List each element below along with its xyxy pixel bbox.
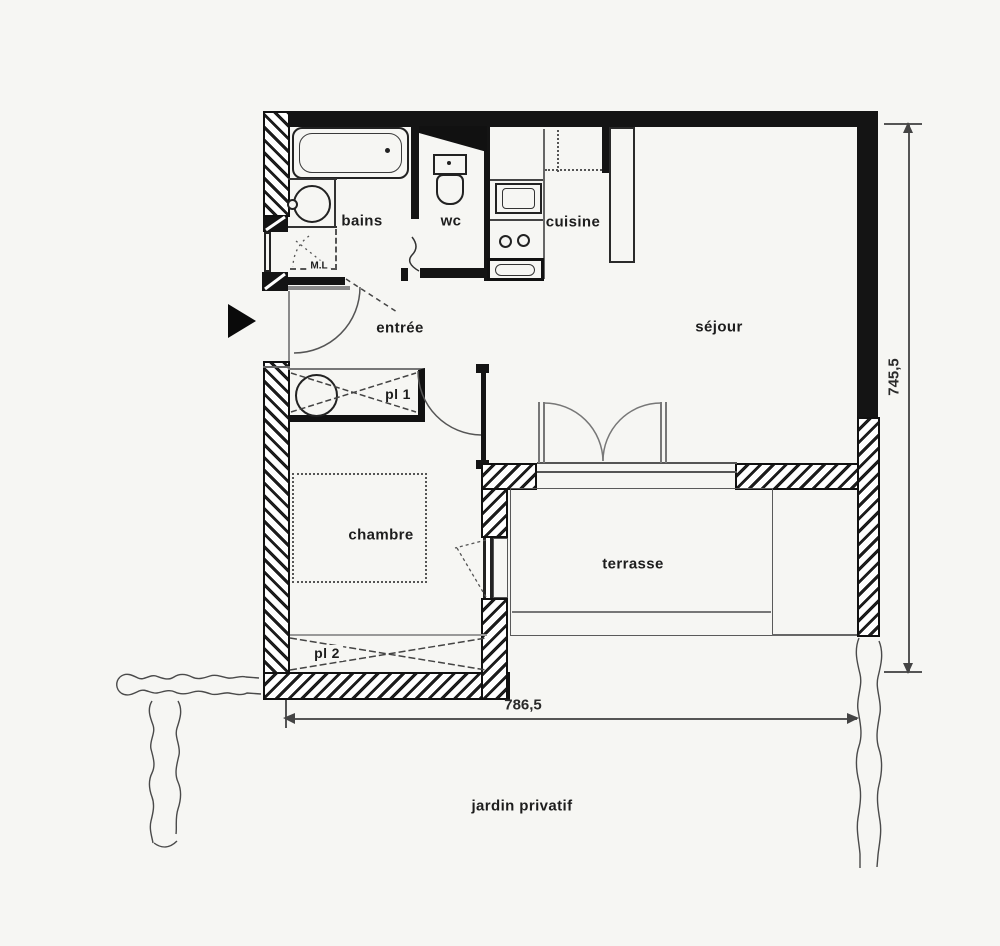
wall-nook-west bbox=[264, 232, 271, 272]
dimension-height: 745,5 bbox=[886, 358, 903, 396]
wall-wc-jamb bbox=[401, 268, 408, 281]
upper-cabinet-line-v bbox=[557, 130, 559, 172]
french-door-leaf-right bbox=[660, 402, 667, 463]
wall-nook-end-top bbox=[476, 364, 489, 373]
room-label-terrasse: terrasse bbox=[602, 556, 664, 573]
room-label-entree: entrée bbox=[376, 320, 423, 337]
room-label-wc: wc bbox=[441, 213, 462, 230]
chambre-window-swing bbox=[455, 540, 486, 597]
toilet-bowl bbox=[436, 174, 464, 205]
kitchen-counter-line2 bbox=[490, 219, 543, 221]
wall-top bbox=[263, 111, 878, 127]
pl1-top-line bbox=[263, 366, 290, 368]
bathtub-inner bbox=[299, 133, 402, 173]
french-door-arc-left bbox=[544, 403, 603, 461]
upper-cabinet-line-h bbox=[545, 169, 602, 171]
garden-fence-right-a bbox=[856, 638, 861, 868]
dimension-width: 786,5 bbox=[504, 697, 542, 714]
jamb-block-upper bbox=[263, 215, 288, 232]
floor-plan: bains wc cuisine entrée séjour chambre t… bbox=[0, 0, 1000, 946]
bathtub-drain bbox=[385, 148, 390, 153]
kitchen-counter-line1 bbox=[490, 179, 543, 181]
wall-right bbox=[857, 111, 878, 417]
french-door-arc-right bbox=[603, 403, 661, 461]
dimension-line-horizontal bbox=[285, 718, 857, 720]
jamb-block-lower bbox=[262, 272, 288, 291]
wall-bains-bottom bbox=[288, 277, 345, 285]
room-label-sejour: séjour bbox=[695, 319, 742, 336]
dimension-line-vertical bbox=[908, 124, 910, 672]
washbasin-tap bbox=[287, 199, 298, 210]
terrace-inner-line bbox=[512, 611, 771, 613]
dimension-ext-top bbox=[884, 123, 922, 125]
garden-hedge-left-cap bbox=[117, 677, 121, 693]
garden-fence-right-b bbox=[877, 641, 882, 867]
wall-bains-wc bbox=[411, 127, 419, 219]
basin-counter-bottom bbox=[288, 226, 337, 228]
garden-fence-left-a bbox=[149, 701, 154, 843]
oven-door bbox=[495, 264, 535, 276]
wall-terrace-pier-hatched bbox=[481, 463, 537, 490]
wall-wc-bottom bbox=[420, 268, 487, 278]
wc-duct-wedge bbox=[419, 126, 487, 152]
bains-door-leaf bbox=[346, 279, 397, 312]
french-door-leaf-left bbox=[538, 402, 545, 463]
closet-label-pl2: pl 2 bbox=[311, 645, 343, 661]
wall-bains-bottom-face bbox=[288, 286, 350, 290]
dimension-ext-left bbox=[285, 700, 287, 728]
kitchen-counter-edge bbox=[543, 129, 545, 279]
garden-fence-left-b bbox=[176, 701, 181, 834]
terrace-edge-extension bbox=[772, 634, 857, 636]
kitchen-sink-basin bbox=[502, 188, 535, 209]
entrance-arrow-icon bbox=[228, 304, 256, 338]
entrance-door-arc bbox=[294, 287, 360, 353]
toilet-cistern-button bbox=[447, 161, 451, 165]
wall-chambre-east-upper-hatched bbox=[481, 488, 508, 538]
wall-left-upper-hatched bbox=[263, 111, 290, 217]
closet-label-pl1: pl 1 bbox=[382, 386, 414, 402]
kitchen-tall-unit bbox=[609, 127, 635, 263]
garden-hedge-left-bottom bbox=[121, 690, 261, 695]
basin-counter-top bbox=[288, 178, 337, 180]
garden-label: jardin privatif bbox=[471, 798, 572, 815]
basin-counter-side bbox=[334, 178, 336, 228]
chambre-window bbox=[483, 538, 493, 598]
room-label-chambre: chambre bbox=[348, 527, 413, 544]
stove-burner-right bbox=[517, 234, 530, 247]
chambre-door-arc bbox=[418, 371, 481, 435]
entrance-face-line bbox=[288, 291, 290, 363]
garden-hedge-left-top bbox=[120, 674, 259, 679]
room-label-bains: bains bbox=[341, 213, 382, 230]
stove-burner-left bbox=[499, 235, 512, 248]
water-heater bbox=[295, 374, 338, 417]
wall-bottom-hatched bbox=[263, 672, 510, 700]
pl2-top-line bbox=[290, 634, 487, 636]
washer-label: M.L bbox=[307, 261, 330, 272]
garden-fence-left-cap bbox=[154, 841, 177, 847]
washbasin bbox=[293, 185, 331, 223]
wall-left-lower-hatched bbox=[263, 361, 290, 700]
room-label-cuisine: cuisine bbox=[546, 214, 601, 231]
dimension-ext-bottom bbox=[884, 671, 922, 673]
wc-door-leaf bbox=[410, 237, 419, 271]
chambre-window-sill bbox=[493, 538, 508, 598]
wall-terrace-east-hatched bbox=[857, 417, 880, 637]
terrace-door-sill bbox=[537, 462, 737, 473]
wall-chambre-east-lower-hatched bbox=[481, 598, 508, 700]
wall-sejour-nook bbox=[481, 368, 486, 465]
